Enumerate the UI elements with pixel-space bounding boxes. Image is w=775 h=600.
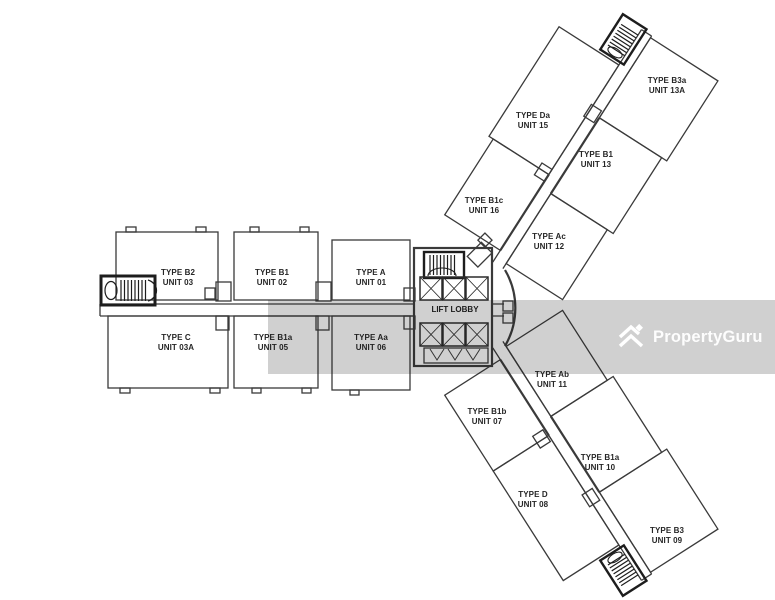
propertyguru-wordmark: PropertyGuru [653,328,763,347]
floor-plan-page: TYPE B2UNIT 03 TYPE B1UNIT 02 TYPE AUNIT… [0,0,775,600]
unit-label-unit-02: TYPE B1UNIT 02 [230,268,314,288]
unit-label-unit-09: TYPE B3UNIT 09 [625,526,709,546]
propertyguru-watermark: PropertyGuru [616,322,763,352]
unit-label-unit-07: TYPE B1bUNIT 07 [445,407,529,427]
unit-label-unit-10: TYPE B1aUNIT 10 [558,453,642,473]
unit-label-unit-08: TYPE DUNIT 08 [491,490,575,510]
propertyguru-logo-icon [616,322,646,352]
unit-label-unit-16: TYPE B1cUNIT 16 [442,196,526,216]
unit-label-unit-01: TYPE AUNIT 01 [329,268,413,288]
stairwell-icon-core [424,252,464,278]
unit-label-unit-12: TYPE AcUNIT 12 [507,232,591,252]
unit-label-unit-15: TYPE DaUNIT 15 [491,111,575,131]
unit-label-unit-03: TYPE B2UNIT 03 [136,268,220,288]
unit-label-unit-13a: TYPE B3aUNIT 13A [625,76,709,96]
unit-label-unit-03a: TYPE CUNIT 03A [134,333,218,353]
lift-shafts-top [420,277,488,300]
watermark-band: PropertyGuru [268,300,775,374]
unit-label-unit-13: TYPE B1UNIT 13 [554,150,638,170]
